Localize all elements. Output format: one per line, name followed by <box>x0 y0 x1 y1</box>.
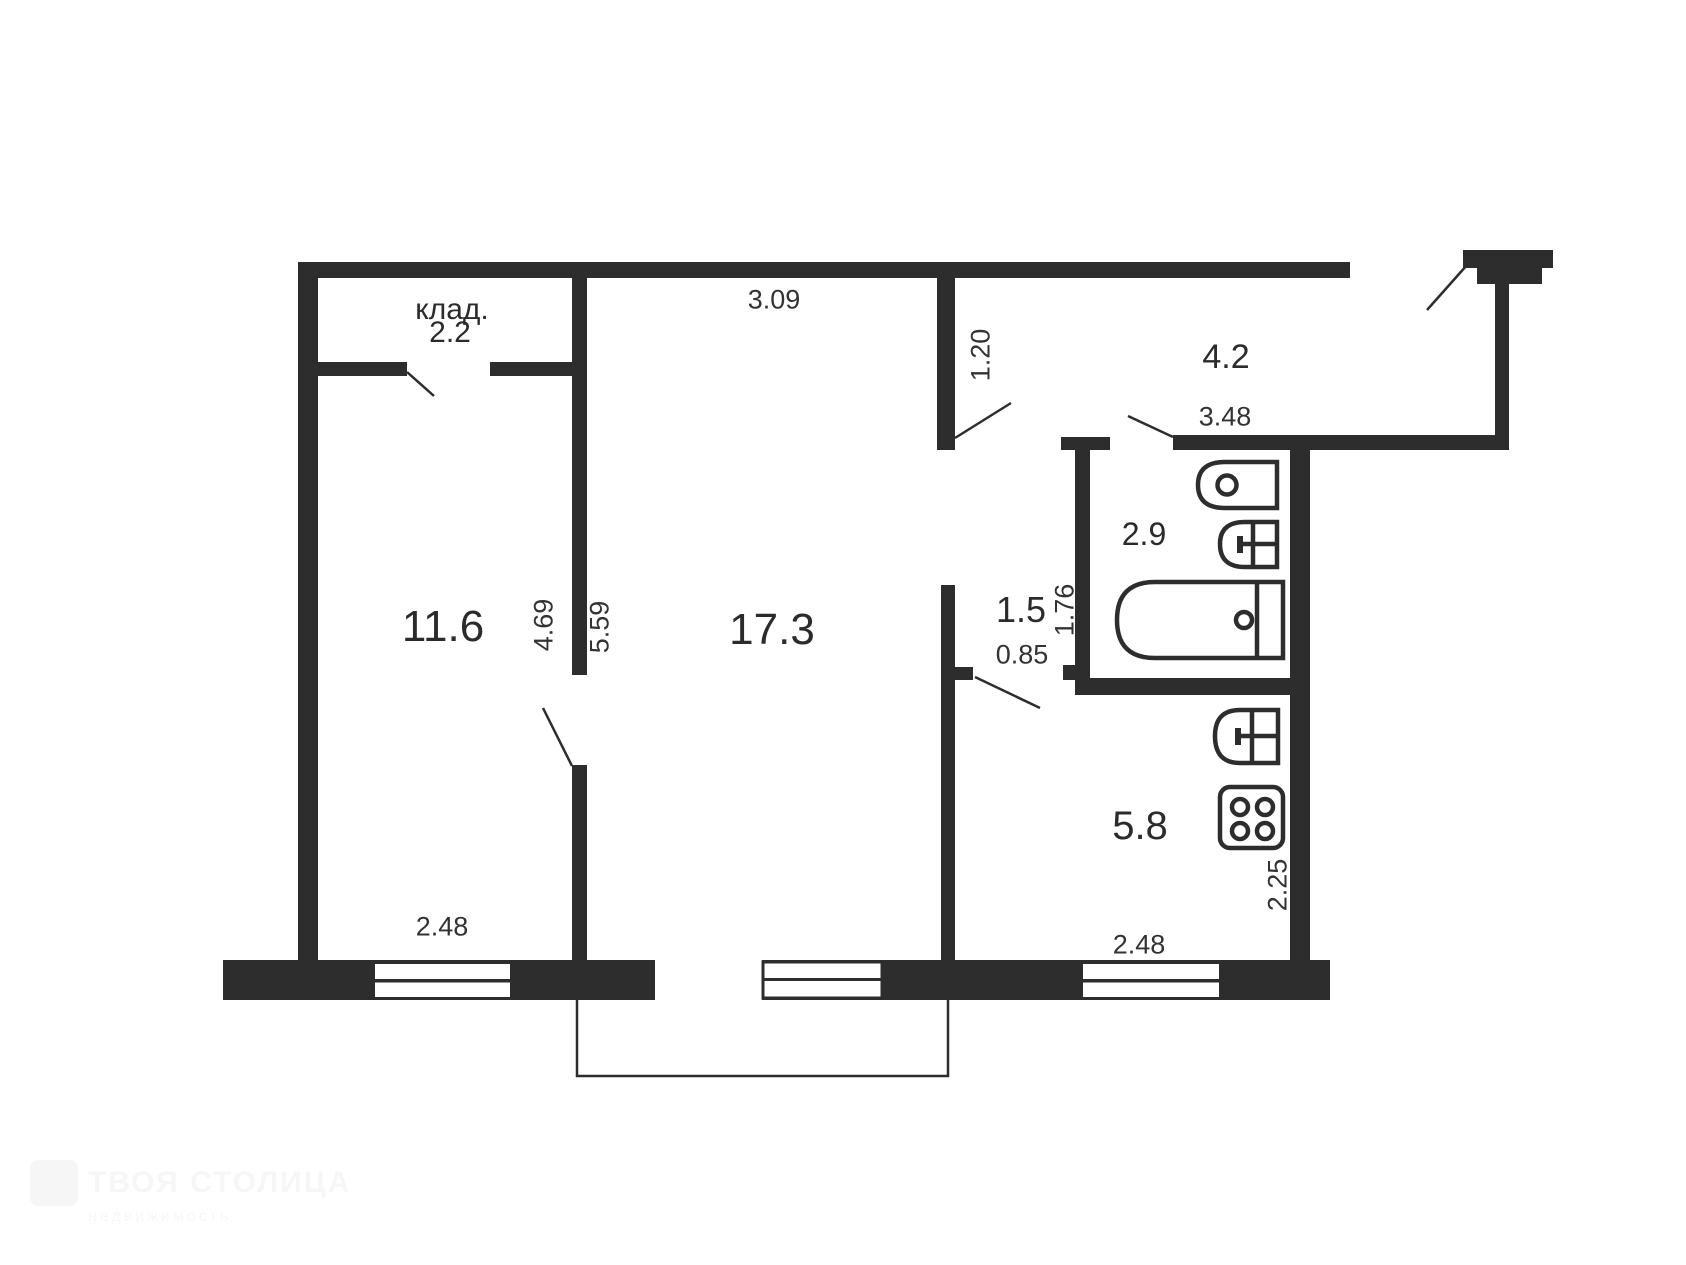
door-living-hall <box>955 403 1011 438</box>
room-label-corridor-area: 1.5 <box>996 592 1046 628</box>
toilet-icon <box>1198 462 1277 508</box>
dimension-bedroom-window: 2.48 <box>416 914 469 941</box>
wall-hall-bottom <box>1173 435 1509 450</box>
dimension-hall-wall: 1.20 <box>968 329 995 382</box>
wall-bath-left <box>1075 450 1090 695</box>
wall-hall-left <box>937 266 955 450</box>
door-corridor-kitchen <box>975 677 1040 708</box>
wall-kitchen-left <box>941 585 955 965</box>
door-entrance <box>1427 265 1467 310</box>
agency-watermark: ТВОЯ СТОЛИЦА недвижимость <box>30 1160 430 1230</box>
dimension-kitchen-window: 2.48 <box>1113 932 1166 959</box>
room-label-kitchen-area: 5.8 <box>1112 806 1168 846</box>
floor-plan: клад. 2.2 11.6 17.3 4.2 2.9 1.5 5.8 3.09… <box>0 0 1686 1265</box>
kitchen-sink-icon <box>1215 710 1278 763</box>
wall-bath-left-stub <box>1063 665 1076 680</box>
dimension-hall-bottom: 3.48 <box>1199 404 1252 431</box>
wall-right <box>1290 437 1310 1000</box>
room-label-bathroom-area: 2.9 <box>1122 518 1166 550</box>
balcony-outline <box>577 1000 948 1076</box>
door-bedroom <box>543 708 572 766</box>
wall-bath-bottom <box>1075 678 1310 695</box>
wall-closet-left <box>317 362 407 376</box>
window-kitchen <box>1083 964 1219 997</box>
dimension-bedroom-wall: 4.69 <box>531 599 558 652</box>
room-label-bedroom-area: 11.6 <box>402 605 484 649</box>
wall-stub-085 <box>953 667 973 680</box>
room-label-hall-area: 4.2 <box>1202 340 1249 374</box>
entry-threshold-inner <box>1477 266 1542 284</box>
dimension-corridor-door: 0.85 <box>996 642 1049 669</box>
bathroom-sink-icon <box>1220 522 1277 567</box>
room-label-closet-area: 2.2 <box>429 318 471 348</box>
window-balcony <box>763 962 882 998</box>
door-bathroom <box>1128 416 1173 437</box>
wall-bath-top-stub <box>1061 437 1110 450</box>
stove-icon <box>1220 787 1283 848</box>
dimension-living-top: 3.09 <box>748 287 801 314</box>
door-closet <box>407 372 434 396</box>
wall-entry <box>1495 283 1509 447</box>
watermark-line1: ТВОЯ СТОЛИЦА <box>88 1166 351 1200</box>
dimension-bathroom-wall: 1.76 <box>1052 584 1079 637</box>
entry-threshold-outer <box>1463 250 1553 268</box>
windows <box>375 960 1219 1000</box>
agency-logo-icon <box>30 1160 78 1206</box>
wall-left <box>298 262 318 1000</box>
balcony-door-opening <box>655 960 762 1000</box>
room-label-living-area: 17.3 <box>729 608 815 652</box>
window-bedroom <box>375 964 510 997</box>
dimension-kitchen-wall: 2.25 <box>1265 859 1292 912</box>
dimension-living-wall: 5.59 <box>587 601 614 654</box>
bathtub-icon <box>1117 582 1283 658</box>
wall-top <box>298 262 1350 278</box>
wall-closet-right <box>490 362 574 376</box>
floor-plan-drawing <box>0 0 1686 1265</box>
wall-mid-lower <box>572 765 587 965</box>
watermark-line2: недвижимость <box>88 1208 430 1226</box>
